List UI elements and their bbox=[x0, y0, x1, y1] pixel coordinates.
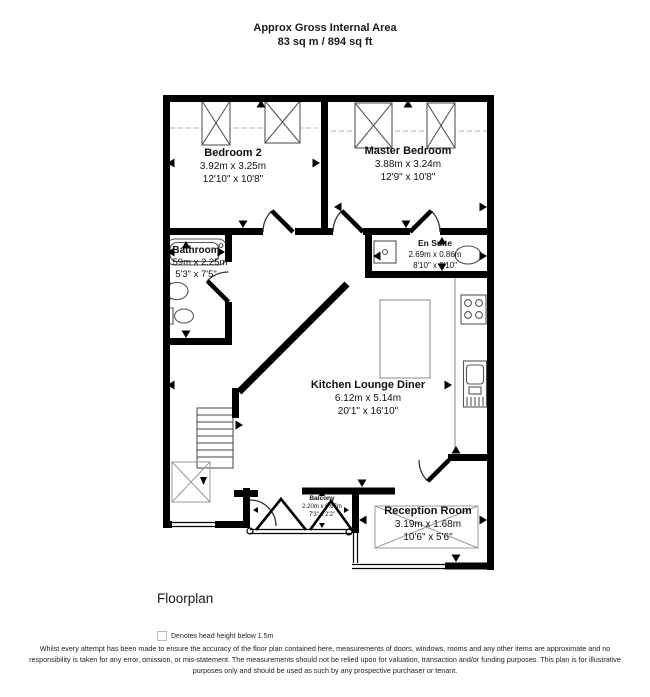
kitchen-counter bbox=[380, 278, 455, 450]
room-dim-metric: 3.19m x 1.68m bbox=[353, 518, 503, 531]
room-label-ensuite: En Suite 2.69m x 0.86m 8'10" x 2'10" bbox=[385, 238, 485, 271]
crossed-box-icon bbox=[157, 631, 167, 641]
room-dim-imperial: 12'10" x 10'8" bbox=[158, 173, 308, 186]
room-dim-metric: 2.20m x 0.67m bbox=[286, 503, 358, 511]
hob-icon bbox=[461, 295, 486, 324]
room-dim-imperial: 5'3" x 7'5" bbox=[148, 269, 244, 281]
room-name: Bedroom 2 bbox=[158, 147, 308, 160]
room-dim-metric: 6.12m x 5.14m bbox=[293, 392, 443, 405]
room-dim-metric: 2.69m x 0.86m bbox=[385, 249, 485, 260]
room-label-balcony: Balcony 2.20m x 0.67m 7'3" x 2'2" bbox=[286, 495, 358, 519]
room-name: Master Bedroom bbox=[333, 145, 483, 158]
room-dim-metric: 3.88m x 3.24m bbox=[333, 158, 483, 171]
kitchen-sink-icon bbox=[464, 361, 487, 407]
room-dim-imperial: 12'9" x 10'8" bbox=[333, 171, 483, 184]
room-label-bathroom: Bathroom 1.59m x 2.25m 5'3" x 7'5" bbox=[148, 245, 244, 281]
room-name: Kitchen Lounge Diner bbox=[293, 379, 443, 392]
room-label-bedroom2: Bedroom 2 3.92m x 3.25m 12'10" x 10'8" bbox=[158, 147, 308, 186]
room-dim-metric: 1.59m x 2.25m bbox=[148, 257, 244, 269]
room-dim-imperial: 8'10" x 2'10" bbox=[385, 260, 485, 271]
room-label-kitchen-lounge-diner: Kitchen Lounge Diner 6.12m x 5.14m 20'1"… bbox=[293, 379, 443, 418]
room-name: Reception Room bbox=[353, 505, 503, 518]
room-dim-imperial: 10'6" x 5'6" bbox=[353, 531, 503, 544]
room-name: Balcony bbox=[286, 495, 358, 503]
room-dim-imperial: 20'1" x 16'10" bbox=[293, 405, 443, 418]
stairs bbox=[197, 408, 233, 485]
room-dim-imperial: 7'3" x 2'2" bbox=[286, 511, 358, 519]
wardrobe-icons bbox=[202, 101, 455, 148]
head-height-legend: Denotes head height below 1.5m bbox=[157, 631, 273, 641]
floorplan-drawing bbox=[0, 0, 650, 697]
disclaimer-text: Whilst every attempt has been made to en… bbox=[25, 644, 625, 676]
floorplan-caption: Floorplan bbox=[157, 591, 213, 606]
floorplan-page: Approx Gross Internal Area 83 sq m / 894… bbox=[0, 0, 650, 697]
room-dim-metric: 3.92m x 3.25m bbox=[158, 160, 308, 173]
room-name: Bathroom bbox=[148, 245, 244, 257]
legend-text: Denotes head height below 1.5m bbox=[171, 633, 273, 640]
room-label-master-bedroom: Master Bedroom 3.88m x 3.24m 12'9" x 10'… bbox=[333, 145, 483, 184]
toilet-icon bbox=[166, 308, 194, 324]
room-name: En Suite bbox=[385, 238, 485, 249]
room-label-reception-room: Reception Room 3.19m x 1.68m 10'6" x 5'6… bbox=[353, 505, 503, 544]
